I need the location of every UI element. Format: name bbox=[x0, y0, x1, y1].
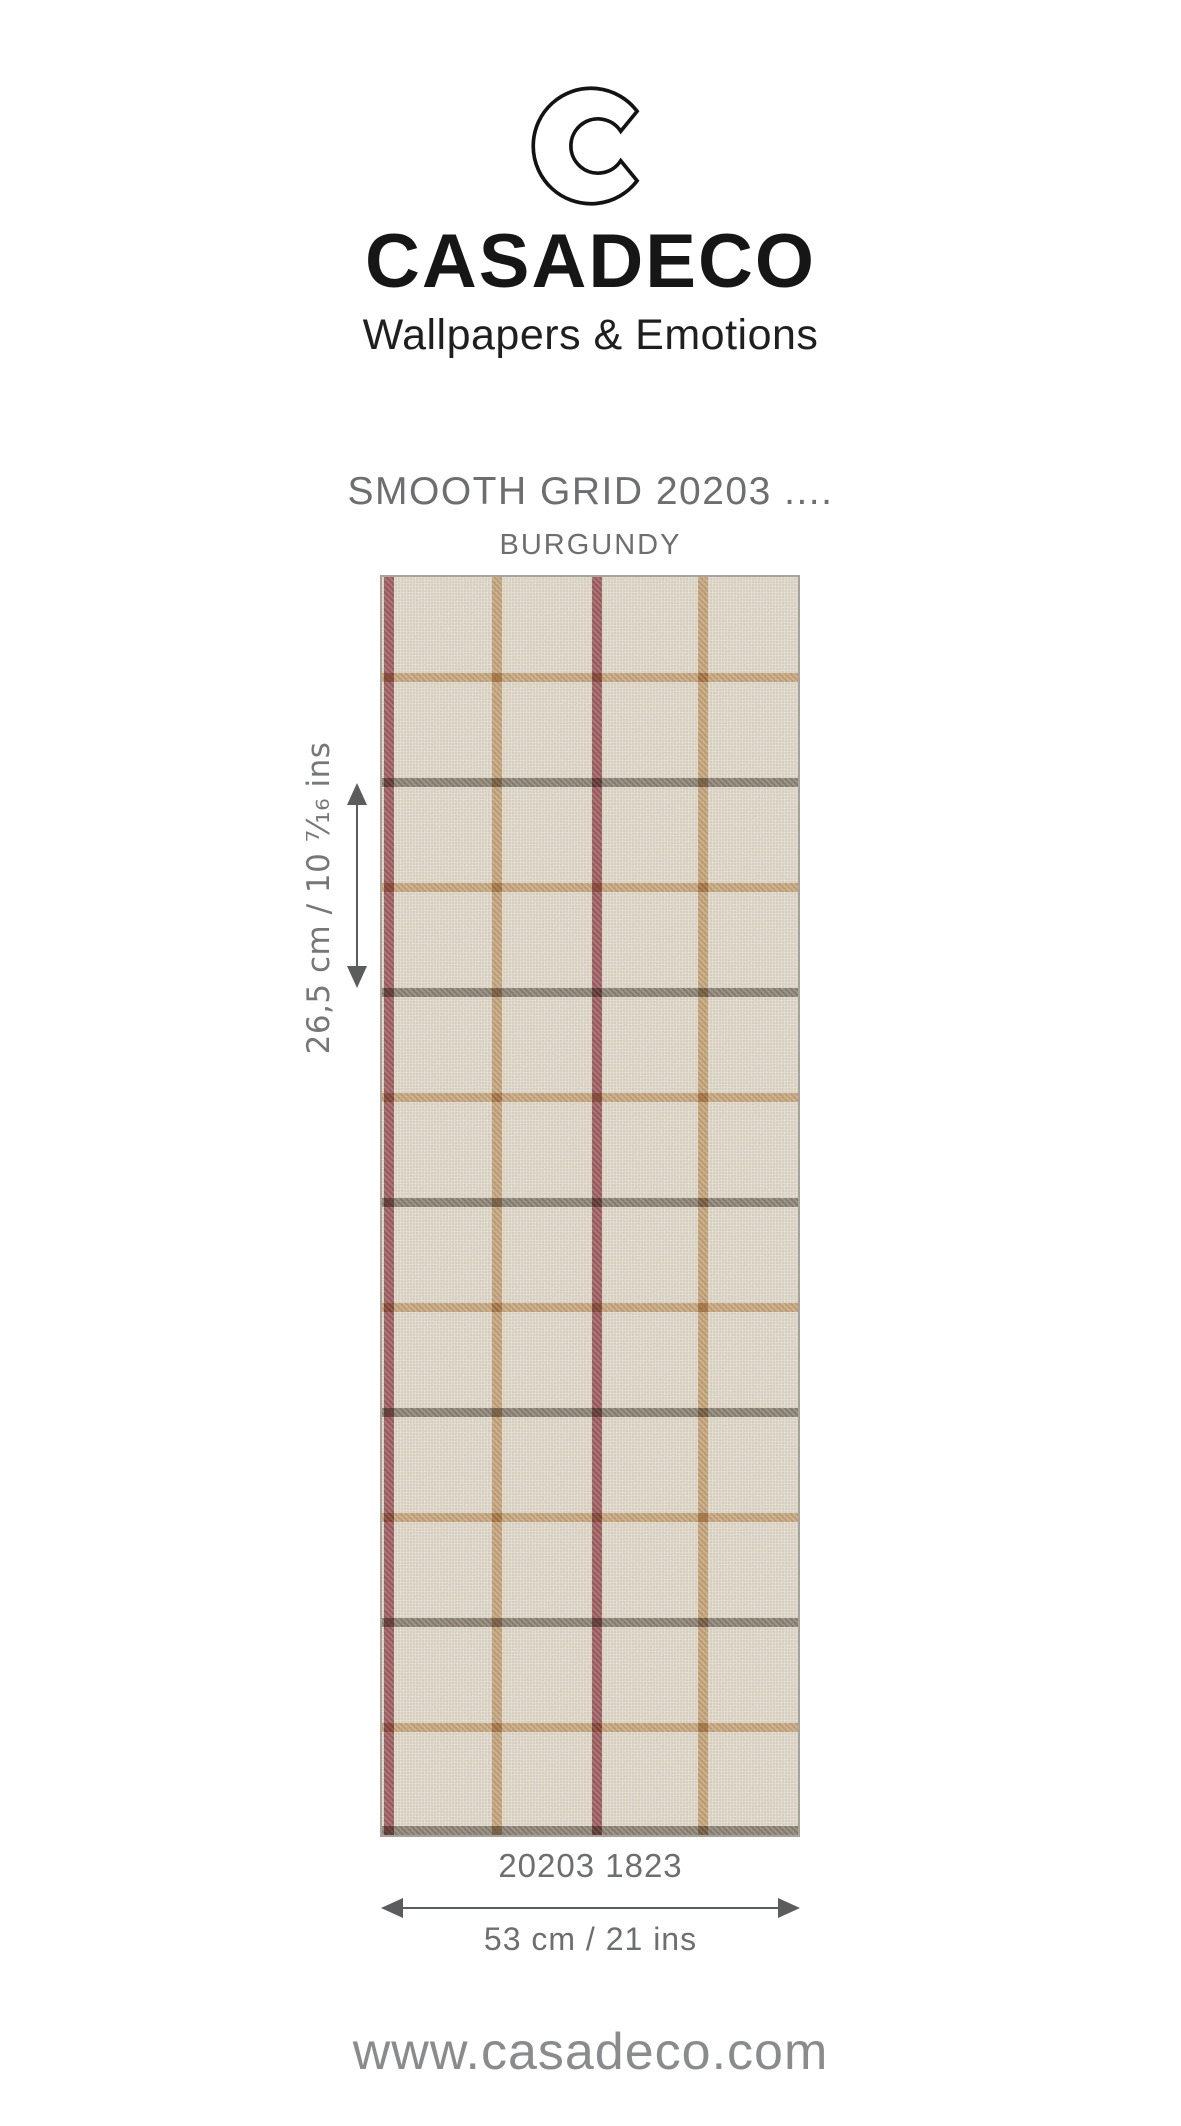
horizontal-stripe-tan bbox=[382, 673, 798, 682]
website-url: www.casadeco.com bbox=[0, 2024, 1181, 2080]
horizontal-stripe-grey bbox=[382, 1618, 798, 1627]
horizontal-stripe-tan bbox=[382, 1303, 798, 1312]
horizontal-stripe-tan bbox=[382, 1093, 798, 1102]
horizontal-stripe-grey bbox=[382, 988, 798, 997]
right-arrowhead-icon bbox=[778, 1898, 800, 1918]
product-title: SMOOTH GRID 20203 .... bbox=[0, 470, 1181, 514]
horizontal-stripe-grey bbox=[382, 1198, 798, 1207]
horizontal-stripe-grey bbox=[382, 778, 798, 787]
casadeco-logo-icon bbox=[521, 76, 661, 216]
product-reference: 20203 1823 bbox=[0, 1847, 1181, 1885]
roll-repeat-height-label: 26,5 cm / 10 ⁷⁄₁₆ ins bbox=[301, 742, 337, 1055]
brand-name: CASADECO bbox=[0, 224, 1181, 300]
roll-width-label: 53 cm / 21 ins bbox=[0, 1920, 1181, 1958]
horizontal-stripe-grey bbox=[382, 1408, 798, 1417]
swatch-pattern bbox=[382, 577, 798, 1835]
horizontal-dimension-arrow bbox=[381, 1898, 800, 1918]
wallpaper-swatch bbox=[380, 575, 800, 1837]
vertical-dimension-arrow bbox=[347, 783, 367, 988]
down-arrowhead-icon bbox=[347, 966, 367, 988]
horizontal-stripe-grey bbox=[382, 1826, 798, 1835]
vertical-arrow-shaft bbox=[356, 799, 358, 972]
horizontal-stripe-tan bbox=[382, 1723, 798, 1732]
horizontal-stripe-tan bbox=[382, 1513, 798, 1522]
horizontal-arrow-shaft bbox=[397, 1907, 784, 1909]
product-sheet: CASADECO Wallpapers & Emotions SMOOTH GR… bbox=[0, 0, 1181, 2126]
brand-tagline: Wallpapers & Emotions bbox=[0, 311, 1181, 359]
horizontal-stripe-tan bbox=[382, 883, 798, 892]
product-colorway: BURGUNDY bbox=[0, 528, 1181, 562]
